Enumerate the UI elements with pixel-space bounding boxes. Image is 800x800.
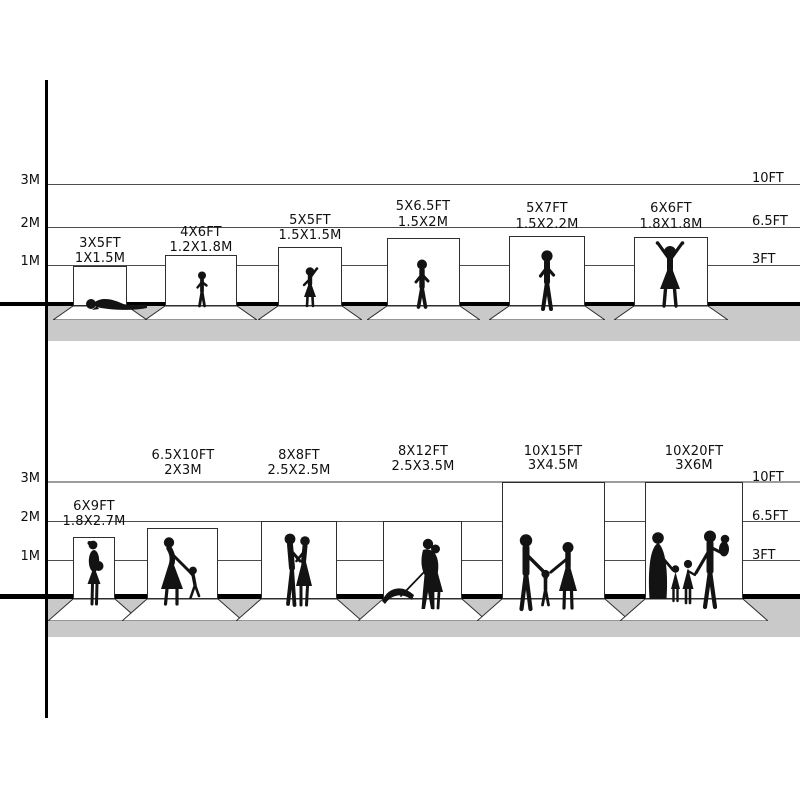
- backdrop-size-ft: 6.5X10FT: [118, 448, 248, 463]
- backdrop-size-m: 2.5X2.5M: [234, 463, 364, 478]
- backdrop-size-m: 2.5X3.5M: [358, 459, 488, 474]
- backdrop-size-m: 1.5X2.2M: [482, 217, 612, 232]
- cheering-girl-icon: [648, 239, 692, 309]
- family-of-three-icon: [512, 532, 592, 612]
- backdrop-size-ft: 8X8FT: [234, 448, 364, 463]
- scale-label-3m-top: 3M: [6, 173, 40, 188]
- standing-boy-icon: [410, 259, 434, 310]
- floor-mat: [145, 306, 257, 320]
- scale-label-2m-top: 2M: [6, 216, 40, 231]
- backdrop-size-ft: 5X6.5FT: [358, 199, 488, 214]
- backdrop-size-m: 2X3M: [118, 463, 248, 478]
- scale-label-6-5ft-bottom: 6.5FT: [752, 509, 788, 524]
- family-of-five-icon: [646, 528, 742, 610]
- backdrop-size-m: 1.5X2M: [358, 215, 488, 230]
- scale-label-3ft-top: 3FT: [752, 252, 775, 267]
- backdrop-size-ft: 5X7FT: [482, 201, 612, 216]
- crawling-baby-icon: [84, 296, 148, 311]
- floor-mat: [258, 306, 362, 320]
- pregnant-woman-icon: [83, 540, 107, 606]
- backdrop-size-ft: 6X9FT: [29, 499, 159, 514]
- scale-label-3m-bottom: 3M: [6, 471, 40, 486]
- scale-label-1m-bottom: 1M: [6, 549, 40, 564]
- scale-label-3ft-bottom: 3FT: [752, 548, 775, 563]
- kissing-couple-icon: [275, 530, 321, 608]
- waving-girl-icon: [299, 264, 321, 308]
- scale-label-6-5ft-top: 6.5FT: [752, 214, 788, 229]
- backdrop-size-m: 1.8X1.8M: [606, 217, 736, 232]
- backdrop-size-m: 3X4.5M: [488, 458, 618, 473]
- backdrop-size-ft: 8X12FT: [358, 444, 488, 459]
- backdrop-size-chart: 3M 2M 1M 10FT 6.5FT 3FT 3X5FT 1X1.5M 4X6…: [0, 0, 800, 800]
- couple-with-umbrella-icon: [381, 534, 451, 612]
- backdrop-size-ft: 10X15FT: [488, 444, 618, 459]
- gridline-3m-top: [46, 184, 800, 185]
- vertical-axis-line: [45, 80, 48, 718]
- backdrop-size-m: 1.8X2.7M: [29, 514, 159, 529]
- standing-child-icon: [534, 250, 560, 312]
- backdrop-size-ft: 6X6FT: [606, 201, 736, 216]
- backdrop-size-m: 1.5X1.5M: [245, 228, 375, 243]
- backdrop-size-m: 3X6M: [629, 458, 759, 473]
- mother-and-child-icon: [152, 536, 208, 606]
- standing-toddler-icon: [194, 271, 210, 308]
- backdrop-size-ft: 10X20FT: [629, 444, 759, 459]
- backdrop-size-ft: 5X5FT: [245, 213, 375, 228]
- scale-label-10ft-top: 10FT: [752, 171, 784, 186]
